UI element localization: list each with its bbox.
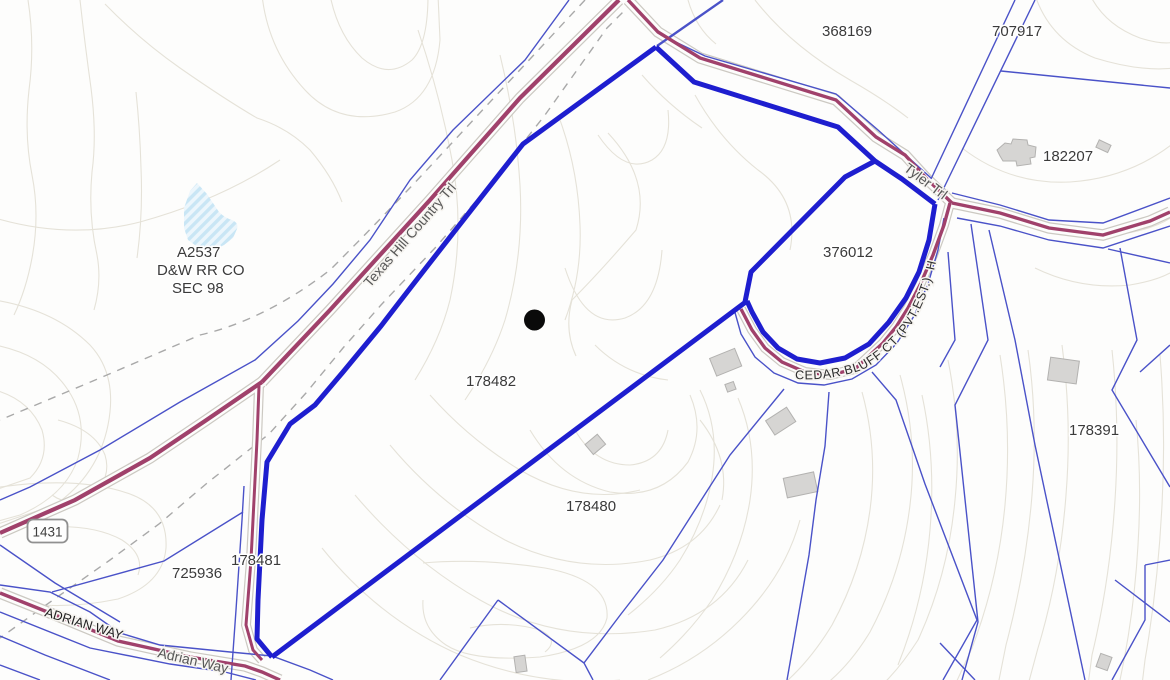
svg-text:D&W RR CO: D&W RR CO (157, 262, 245, 279)
svg-text:178482: 178482 (466, 373, 516, 390)
svg-text:1431: 1431 (32, 525, 62, 540)
svg-text:SEC 98: SEC 98 (172, 280, 224, 297)
svg-text:178480: 178480 (566, 498, 616, 515)
svg-text:376012: 376012 (823, 244, 873, 261)
svg-text:368169: 368169 (822, 23, 872, 40)
svg-text:725936: 725936 (172, 565, 222, 582)
svg-text:707917: 707917 (992, 23, 1042, 40)
svg-text:178481: 178481 (231, 552, 281, 569)
svg-text:178391: 178391 (1069, 422, 1119, 439)
svg-text:A2537: A2537 (177, 244, 220, 261)
svg-text:182207: 182207 (1043, 148, 1093, 165)
